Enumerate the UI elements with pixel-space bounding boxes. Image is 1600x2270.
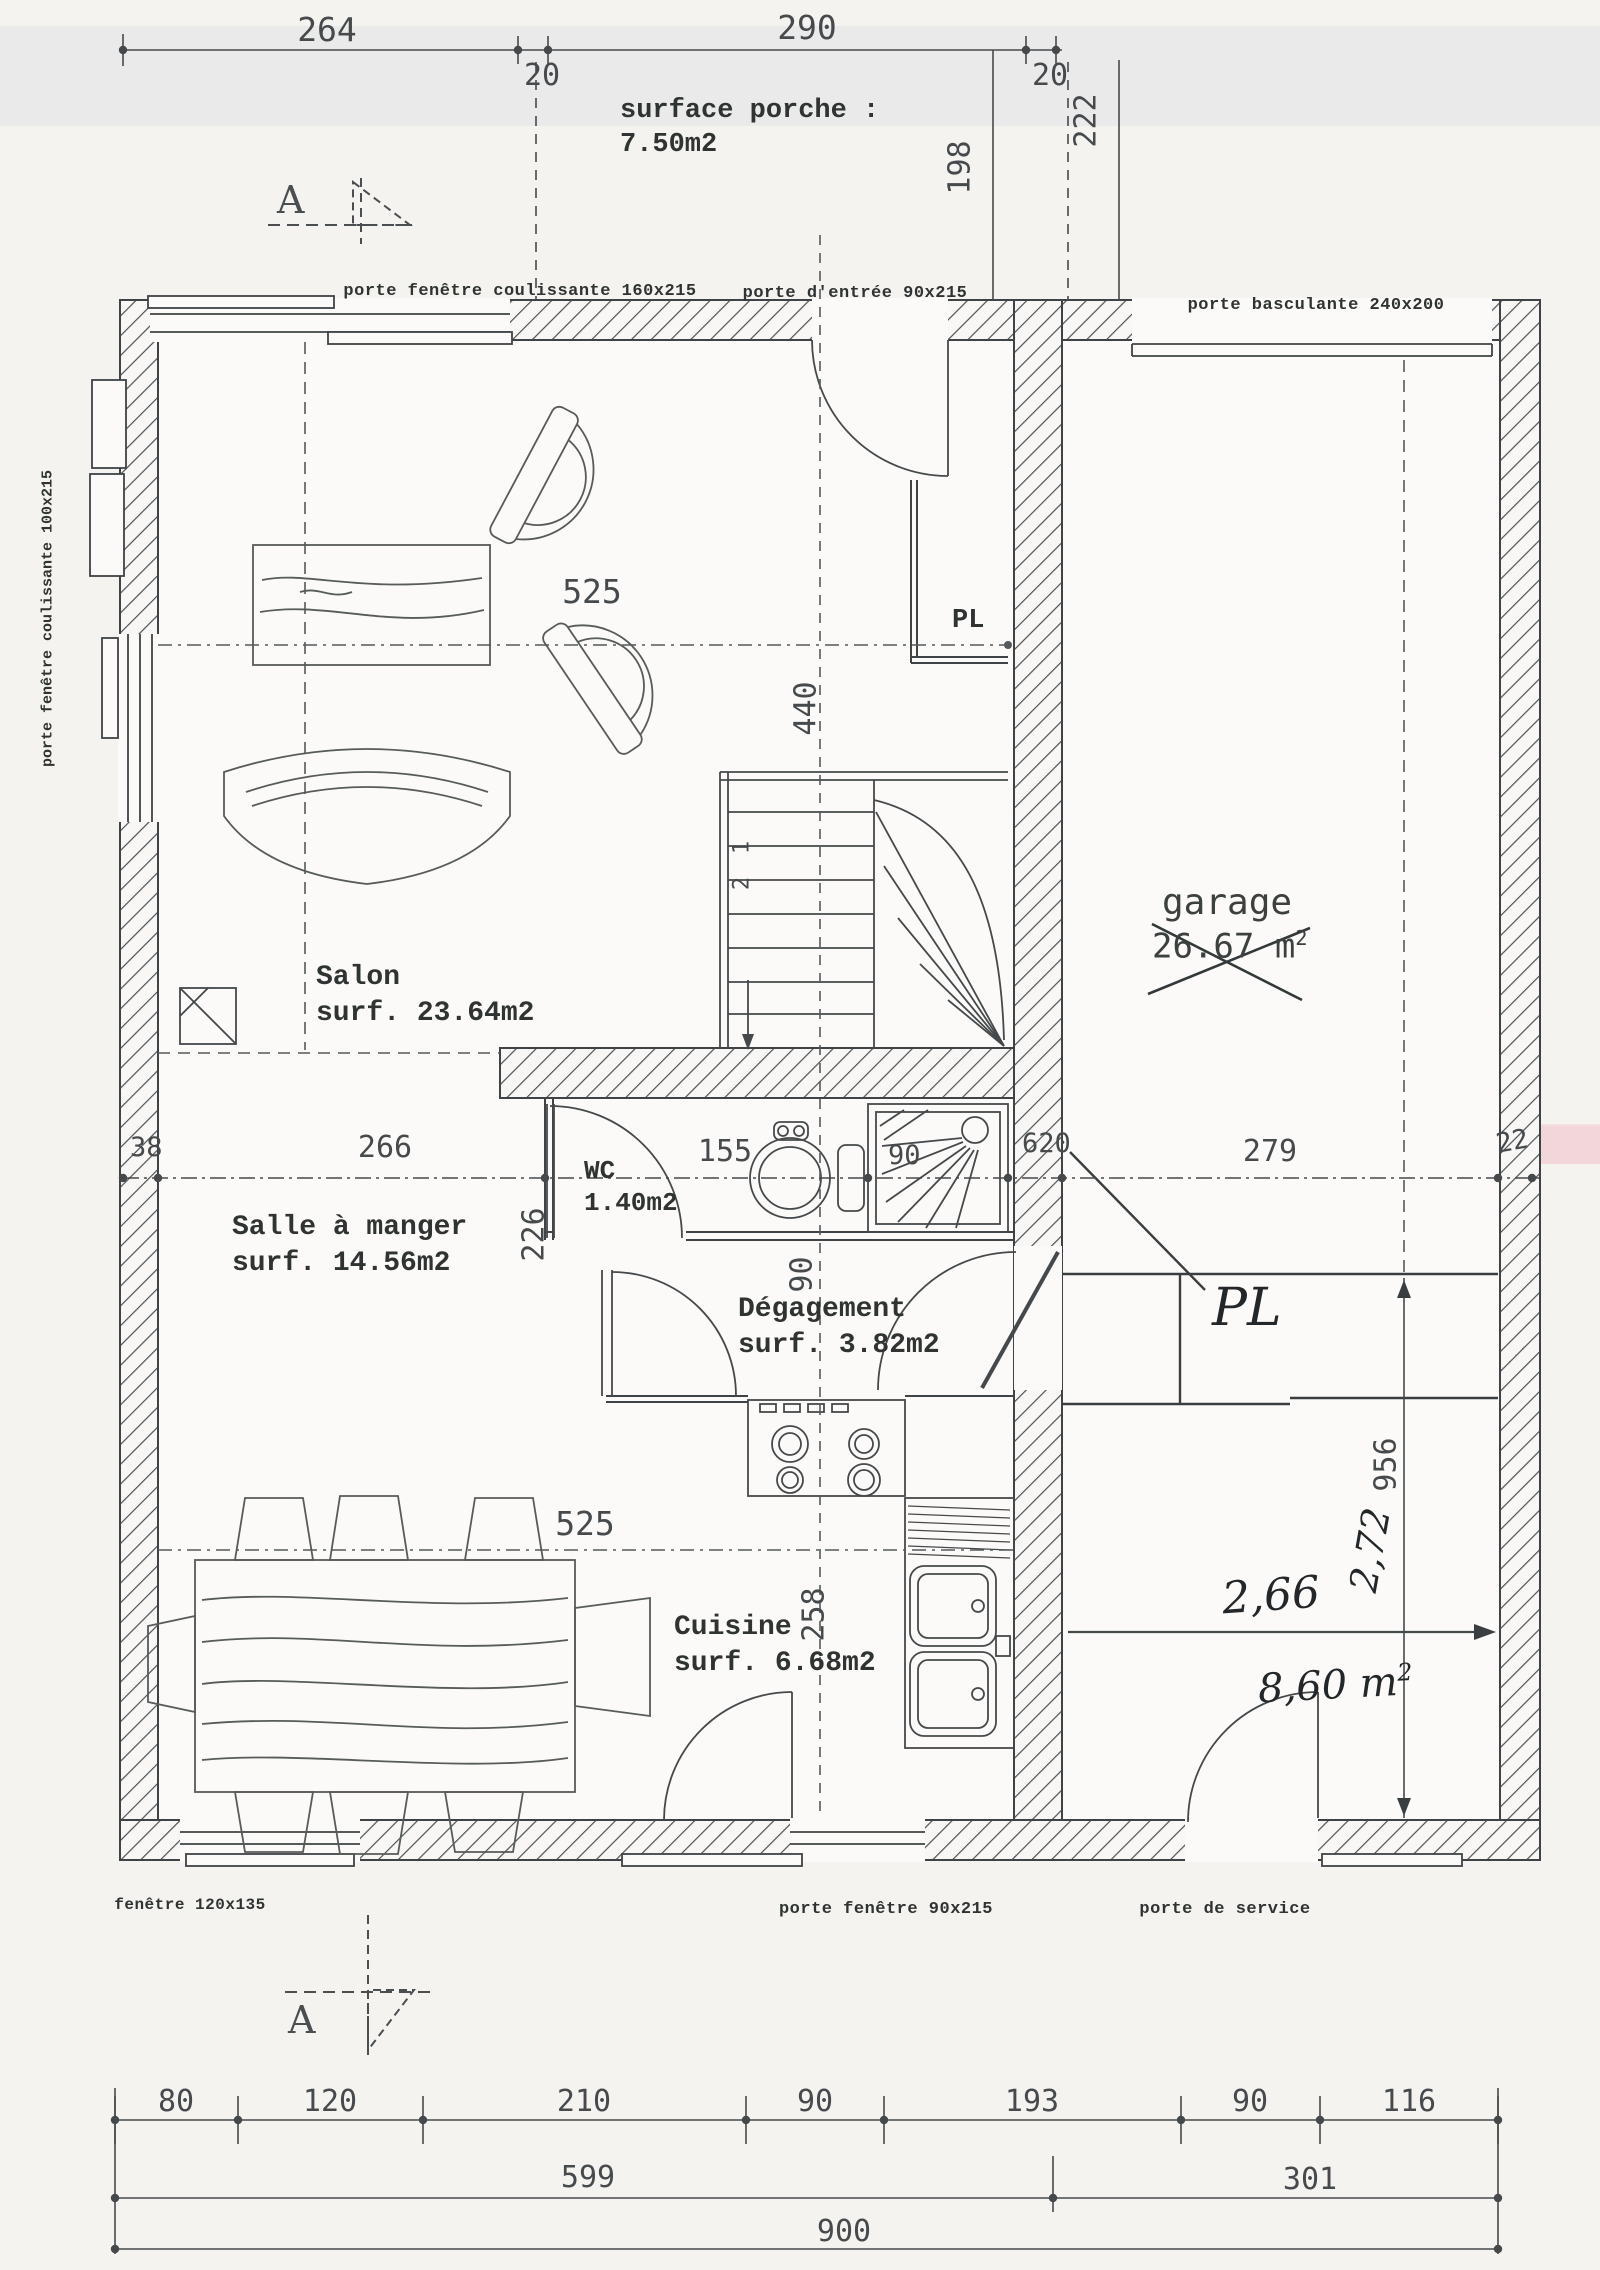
room-garage-name: garage [1162, 882, 1292, 923]
dim-222: 222 [1069, 86, 1104, 156]
label-entry-door: porte d'entrée 90x215 [700, 284, 1010, 303]
label-bottom-window: fenêtre 120x135 [95, 1896, 285, 1914]
dim-table-525: 525 [545, 1504, 625, 1543]
closet-pl-handwritten: PL [1212, 1278, 1282, 1338]
dim-198: 198 [943, 133, 978, 203]
handwritten-8-60: 8,60 m2 [1257, 1658, 1414, 1712]
room-cuisine-name: Cuisine [674, 1610, 792, 1646]
dim-290: 290 [762, 8, 852, 47]
room-cuisine-area: surf. 6.68m2 [674, 1646, 876, 1682]
chain1-120: 120 [295, 2084, 365, 2119]
chain1-210: 210 [549, 2084, 619, 2119]
label-top-window: porte fenêtre coulissante 160x215 [289, 282, 751, 301]
chain1-80: 80 [141, 2084, 211, 2119]
room-sam-name: Salle à manger [232, 1210, 467, 1246]
dim-226: 226 [517, 1200, 552, 1270]
dim-264: 264 [282, 10, 372, 49]
chain1-90b: 90 [1215, 2084, 1285, 2119]
label-garage-door: porte basculante 240x200 [1186, 296, 1446, 315]
stair-step-2: 2 [730, 869, 755, 899]
dim-440: 440 [789, 674, 824, 744]
room-sam-area: surf. 14.56m2 [232, 1246, 450, 1282]
room-degagement-area: surf. 3.82m2 [738, 1328, 940, 1364]
closet-pl-label: PL [952, 606, 984, 636]
dim-38: 38 [130, 1132, 163, 1163]
dim-279: 279 [1230, 1134, 1310, 1169]
room-wc-name: WC [584, 1156, 615, 1186]
dim-155: 155 [690, 1134, 760, 1169]
floorplan-drawing [0, 0, 1600, 2270]
chain1-90a: 90 [780, 2084, 850, 2119]
label-bottom-door-window: porte fenêtre 90x215 [756, 1900, 1016, 1919]
label-service-door: porte de service [1105, 1900, 1345, 1919]
dim-shower-90: 90 [888, 1140, 921, 1171]
dim-258: 258 [797, 1580, 832, 1650]
section-letter-top: A [277, 178, 304, 222]
dim-22: 22 [1494, 1123, 1531, 1159]
room-wc-area: 1.40m2 [584, 1188, 678, 1218]
room-garage-area: 26.67 m2 [1152, 926, 1308, 966]
porch-surface-line2: 7.50m2 [620, 130, 717, 160]
dim-deg-90: 90 [785, 1240, 820, 1310]
dim-266: 266 [350, 1130, 420, 1165]
section-letter-bottom: A [288, 1998, 315, 2042]
handwritten-2-66: 2,66 [1220, 1567, 1321, 1625]
label-left-window: porte fenêtre coulissante 100x215 [40, 434, 57, 804]
chain1-116: 116 [1374, 2084, 1444, 2119]
floorplan-page: 264 20 290 20 198 222 surface porche : 7… [0, 0, 1600, 2270]
dim-salon-525: 525 [552, 572, 632, 611]
stair-step-1: 1 [730, 833, 755, 863]
room-degagement-name: Dégagement [738, 1292, 906, 1328]
chain2-301: 301 [1275, 2162, 1345, 2197]
room-salon-area: surf. 23.64m2 [316, 996, 534, 1032]
chain1-193: 193 [997, 2084, 1067, 2119]
porch-surface-line1: surface porche : [620, 96, 879, 126]
dim-20a: 20 [512, 58, 572, 93]
chain2-599: 599 [553, 2160, 623, 2195]
chain3-900: 900 [809, 2214, 879, 2249]
dim-620: 620 [1022, 1128, 1071, 1159]
room-salon-name: Salon [316, 960, 400, 996]
